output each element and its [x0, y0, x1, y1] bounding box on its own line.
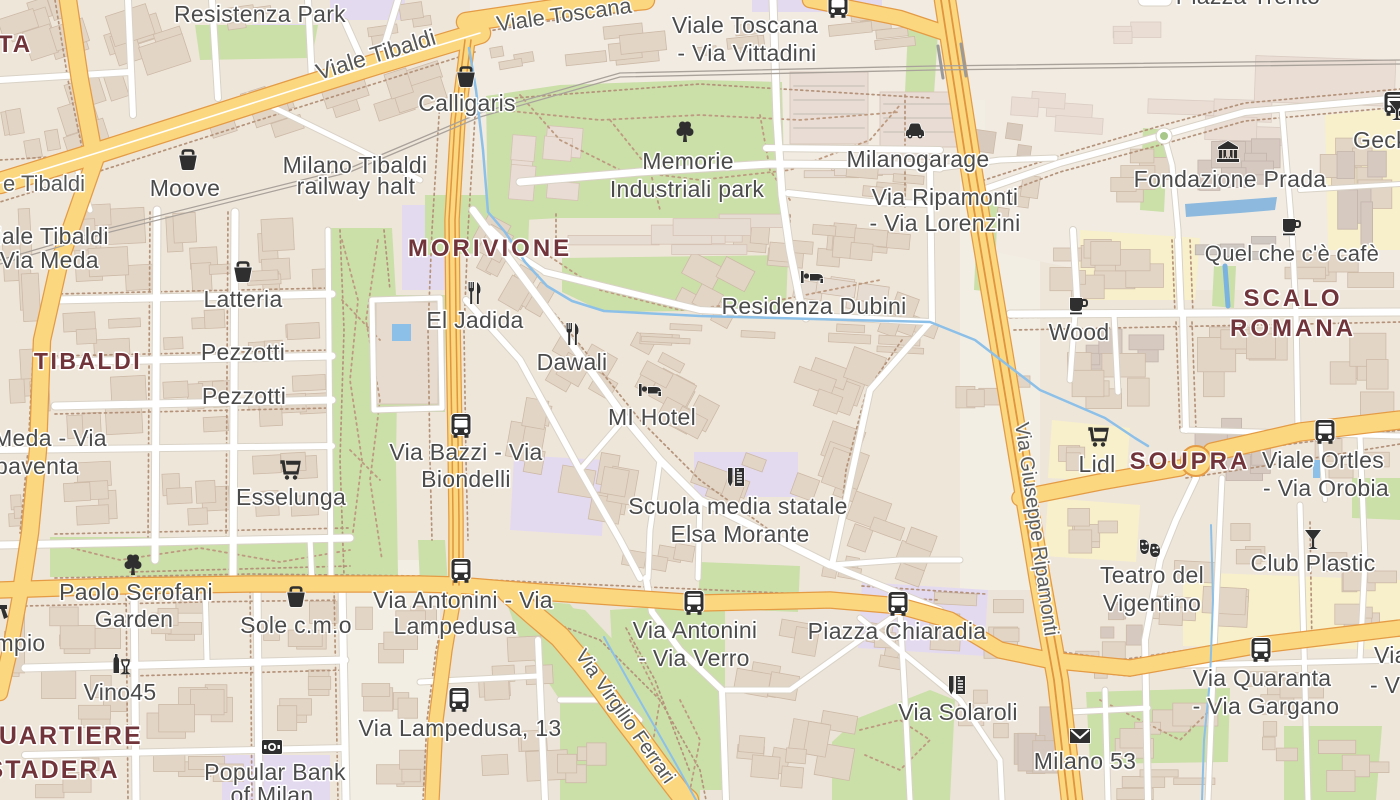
svg-text:Vino45: Vino45 — [83, 679, 156, 705]
svg-text:Club Plastic: Club Plastic — [1250, 550, 1375, 576]
svg-text:railway halt: railway halt — [297, 173, 416, 199]
svg-text:Milano 53: Milano 53 — [1034, 748, 1136, 774]
svg-text:Calligaris: Calligaris — [418, 90, 516, 116]
svg-text:Memorie: Memorie — [642, 148, 734, 174]
svg-text:Biondelli: Biondelli — [421, 466, 511, 492]
svg-text:paventa: paventa — [0, 453, 79, 479]
svg-text:Latteria: Latteria — [203, 286, 282, 312]
svg-text:Via Lampedusa, 13: Via Lampedusa, 13 — [359, 715, 562, 741]
svg-text:- Via: - Via — [1370, 672, 1400, 698]
svg-text:- Via Vittadini: - Via Vittadini — [677, 40, 816, 66]
svg-text:MORIVIONE: MORIVIONE — [408, 235, 572, 262]
svg-text:STADERA: STADERA — [0, 756, 119, 784]
svg-text:Residenza Dubini: Residenza Dubini — [721, 293, 906, 319]
svg-text:Lampedusa: Lampedusa — [394, 613, 517, 639]
svg-text:Via Quaranta: Via Quaranta — [1193, 665, 1332, 691]
svg-text:Viale Ortles: Viale Ortles — [1262, 447, 1384, 473]
svg-text:Piazza Trento: Piazza Trento — [1176, 0, 1321, 9]
svg-text:ROMANA: ROMANA — [1230, 315, 1356, 342]
svg-text:- Via Orobia: - Via Orobia — [1263, 475, 1389, 501]
svg-text:El Jadida: El Jadida — [426, 307, 523, 333]
svg-text:- Via Verro: - Via Verro — [638, 645, 750, 671]
svg-text:Wood: Wood — [1049, 319, 1110, 345]
svg-text:Garden: Garden — [95, 606, 174, 632]
svg-text:Fondazione Prada: Fondazione Prada — [1134, 166, 1327, 192]
svg-text:Via Ripamonti: Via Ripamonti — [872, 184, 1019, 210]
svg-text:QUARTIERE: QUARTIERE — [0, 722, 143, 750]
svg-text:Paolo Scrofani: Paolo Scrofani — [59, 579, 213, 605]
svg-text:- Via Meda: - Via Meda — [0, 247, 99, 273]
svg-text:Pezzotti: Pezzotti — [201, 339, 285, 365]
svg-text:Sole c.m.o: Sole c.m.o — [240, 612, 352, 638]
svg-text:SOUPRA: SOUPRA — [1130, 448, 1251, 475]
svg-text:Elsa Morante: Elsa Morante — [670, 521, 809, 547]
svg-text:SCALO: SCALO — [1244, 285, 1343, 312]
svg-text:Via Antonini: Via Antonini — [633, 617, 758, 643]
svg-text:- Via Gargano: - Via Gargano — [1193, 693, 1340, 719]
svg-text:Vigentino: Vigentino — [1103, 590, 1201, 616]
svg-text:Via Solaroli: Via Solaroli — [898, 699, 1018, 725]
svg-text:Via: Via — [1374, 642, 1400, 668]
svg-text:Scuola media statale: Scuola media statale — [628, 493, 848, 519]
svg-text:Moove: Moove — [150, 175, 221, 201]
svg-text:- Via Lorenzini: - Via Lorenzini — [869, 210, 1020, 236]
svg-text:Milanogarage: Milanogarage — [847, 146, 990, 172]
svg-text:Industriali park: Industriali park — [610, 176, 765, 202]
svg-text:Teatro del: Teatro del — [1100, 562, 1204, 588]
svg-text:Meda - Via: Meda - Via — [0, 425, 107, 451]
svg-text:Resistenza Park: Resistenza Park — [174, 1, 346, 27]
svg-text:Quel che c'è cafè: Quel che c'è cafè — [1205, 241, 1379, 266]
svg-text:Piazza Chiaradia: Piazza Chiaradia — [808, 618, 987, 644]
svg-text:Esselunga: Esselunga — [236, 484, 346, 510]
svg-text:Via Bazzi - Via: Via Bazzi - Via — [389, 439, 542, 465]
svg-text:Via Antonini - Via: Via Antonini - Via — [373, 587, 553, 613]
svg-text:Pezzotti: Pezzotti — [202, 383, 286, 409]
svg-text:mpio: mpio — [0, 630, 46, 656]
svg-text:TA: TA — [0, 31, 32, 58]
svg-text:Viale Toscana: Viale Toscana — [672, 12, 818, 38]
svg-text:Lidl: Lidl — [1078, 451, 1115, 477]
svg-text:Viale Tibaldi: Viale Tibaldi — [0, 223, 109, 249]
svg-text:of Milan: of Milan — [231, 782, 314, 800]
svg-text:e Tibaldi: e Tibaldi — [3, 171, 85, 196]
svg-text:Dawali: Dawali — [537, 349, 608, 375]
svg-text:MI Hotel: MI Hotel — [608, 404, 696, 430]
svg-text:Gecko: Gecko — [1353, 127, 1400, 153]
svg-text:TIBALDI: TIBALDI — [34, 348, 142, 374]
